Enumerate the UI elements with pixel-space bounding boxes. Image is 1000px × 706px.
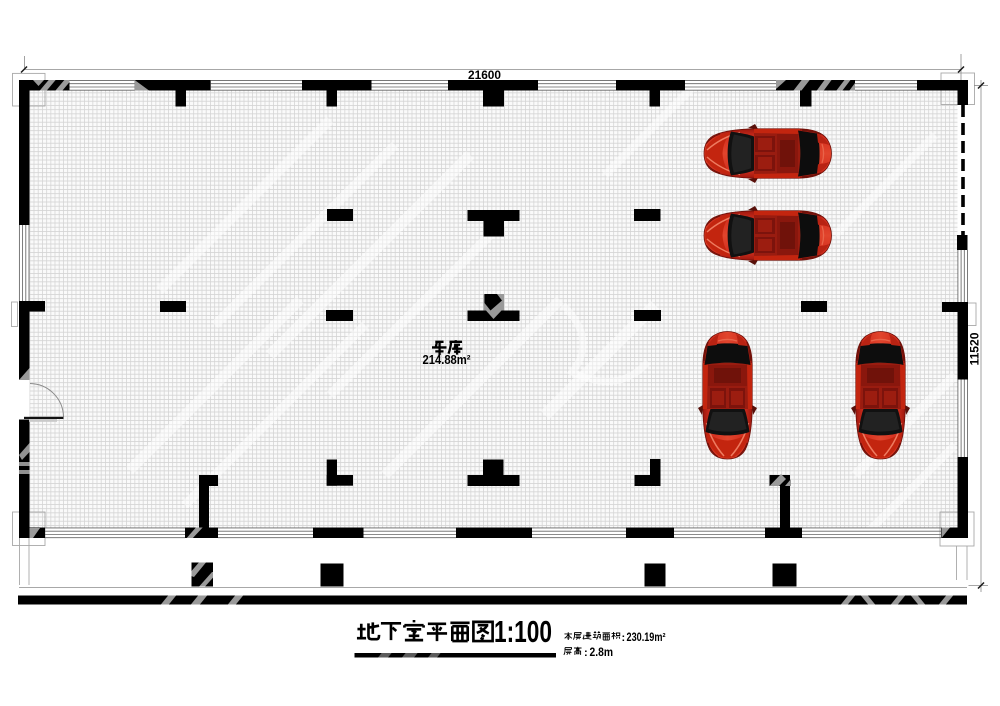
svg-text:1:100: 1:100 xyxy=(494,614,552,649)
svg-text:214.88m²: 214.88m² xyxy=(423,353,471,367)
svg-text::: : xyxy=(584,647,588,659)
svg-text:11520: 11520 xyxy=(968,332,982,365)
svg-text:2.8m: 2.8m xyxy=(590,647,614,659)
svg-text::: : xyxy=(622,632,626,644)
svg-text:21600: 21600 xyxy=(468,68,501,82)
svg-text:230.19m²: 230.19m² xyxy=(627,632,666,644)
